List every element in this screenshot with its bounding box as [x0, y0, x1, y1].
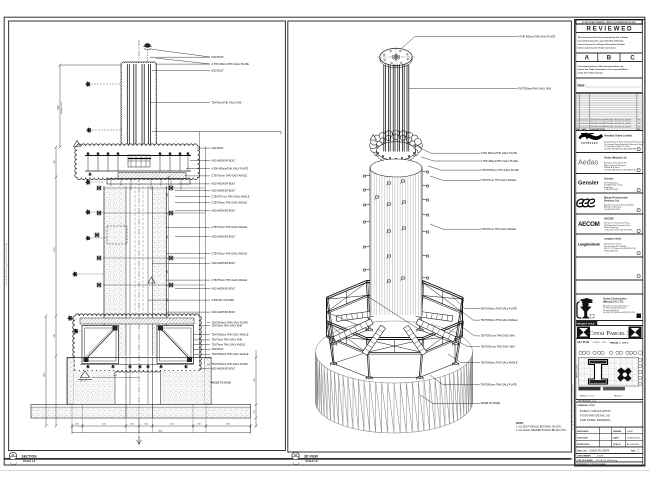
svg-text:Gensler: Gensler [604, 178, 613, 181]
svg-text:JOB NUMBER: JOB NUMBER [577, 456, 591, 458]
svg-text:C75X75T mm THK GALV ANGLE: C75X75T mm THK GALV ANGLE [212, 195, 250, 199]
svg-text:Tel: (853) 2833 1113 Fax: (85: Tel: (853) 2833 1113 Fax: (853) 2833 111… [604, 169, 636, 171]
svg-text:75X75X5mm THK GALV PLATE: 75X75X5mm THK GALV PLATE [212, 362, 249, 366]
svg-text:relieve the Trade Contractor: relieve the Trade Contractor of its resp… [578, 68, 629, 71]
svg-text:C75X75mm THK GALV ANGLE: C75X75mm THK GALV ANGLE [212, 174, 248, 178]
svg-text:75X75X5mm THK GALV ANGLE: 75X75X5mm THK GALV ANGLE [212, 332, 249, 336]
svg-text:75X75mm THK GALV SHS: 75X75mm THK GALV SHS [212, 338, 243, 342]
svg-text:SCALE 1:8: SCALE 1:8 [306, 460, 319, 463]
svg-text:3115/B_PD_85099.dwg 2/14/2015: 3115/B_PD_85099.dwg 2/14/2015 10:22:41 A… [5, 242, 8, 285]
svg-text:under the Trade Contract.: under the Trade Contract. [578, 72, 604, 75]
svg-text:Consultant review of this docu: Consultant review of this document does … [578, 65, 624, 68]
svg-text:SCALE: SCALE [613, 443, 621, 446]
svg-text:C75X75mm THK GALV ANGLE: C75X75mm THK GALV ANGLE [212, 200, 248, 204]
svg-text:(verify on site): (verify on site) [60, 102, 63, 114]
svg-text:M10 ANCHOR BOLT: M10 ANCHOR BOLT [212, 367, 236, 371]
svg-text:75X75X5mm THK GALV ANGLE: 75X75X5mm THK GALV ANGLE [212, 352, 249, 356]
svg-text:M10 ANCHOR BOLT: M10 ANCHOR BOLT [212, 188, 236, 192]
svg-text:△: △ [577, 118, 579, 121]
svg-text:M10 BOLT: M10 BOLT [212, 347, 225, 351]
svg-text:LMHO: LMHO [627, 431, 634, 433]
svg-text:△: △ [577, 122, 579, 125]
svg-text:T +852.2521.3028: T +852.2521.3028 [604, 189, 618, 191]
svg-text:SCALE 1:8: SCALE 1:8 [23, 460, 36, 463]
svg-text:M10 BOLT: M10 BOLT [212, 146, 225, 150]
svg-text:3D VIEW: 3D VIEW [304, 454, 319, 458]
svg-text:PARCEL 1, LOT 3: PARCEL 1, LOT 3 [575, 364, 578, 378]
svg-text:PARCEL 2: PARCEL 2 [614, 395, 623, 398]
svg-text:M10 BOLT: M10 BOLT [212, 55, 225, 59]
svg-text:Tel: (853) 2878 2938: Tel: (853) 2878 2938 [604, 209, 620, 211]
svg-text:2. ALL FILLET WELDED SHOULD B: 2. ALL FILLET WELDED SHOULD BE 6mm THK. [516, 429, 567, 432]
svg-text:NOTE:: NOTE: [516, 422, 524, 425]
svg-text:PARCEL 1, LOT 2: PARCEL 1, LOT 2 [610, 342, 629, 345]
svg-text:DRAWING TITLE: DRAWING TITLE [578, 404, 596, 407]
svg-text:10-10-14: 10-10-14 [580, 119, 589, 121]
svg-text:75X75mm THK GALV ANGLE: 75X75mm THK GALV ANGLE [212, 342, 246, 346]
svg-text:C: C [630, 56, 635, 62]
svg-text:4 THK 450mmTHK GALV PLATE: 4 THK 450mmTHK GALV PLATE [518, 34, 556, 38]
svg-text:Aedas: Aedas [578, 158, 599, 167]
svg-text:300: 300 [167, 193, 169, 196]
svg-text:C: C [638, 448, 640, 452]
svg-text:REV: REV [631, 450, 636, 452]
svg-text:FOR STEEL DRAWING: FOR STEEL DRAWING [580, 418, 611, 422]
svg-text:3115/B_PD_85099: 3115/B_PD_85099 [589, 449, 610, 452]
svg-text:T +852 2317 7273 F +852 231: T +852 2317 7273 F +852 2317 7609 [604, 229, 632, 231]
svg-text:M10 ANCHOR BOLT: M10 ANCHOR BOLT [212, 159, 236, 163]
svg-text:M10 ANCHOR BOLT: M10 ANCHOR BOLT [212, 310, 236, 314]
svg-text:Services Ltd.: Services Ltd. [604, 200, 620, 203]
svg-text:450: 450 [254, 377, 256, 381]
svg-text:M10 ANCHOR BOLT: M10 ANCHOR BOLT [212, 235, 236, 239]
svg-text:F (853) 2833 1532: F (853) 2833 1532 [604, 250, 618, 252]
svg-text:C75X75mm THK GALV ANGLE: C75X75mm THK GALV ANGLE [481, 178, 517, 182]
svg-text:Aedas (Macau) Ltd.: Aedas (Macau) Ltd. [604, 157, 627, 160]
svg-text:CHECKED: CHECKED [577, 437, 588, 439]
svg-text:DRAWN: DRAWN [613, 430, 622, 433]
svg-text:2700: 2700 [54, 247, 56, 253]
svg-text:Tel: (853) 2875 3618 Fax: (85: Tel: (853) 2875 3618 Fax: (853) 2875 371… [603, 312, 635, 314]
svg-text:Gensler: Gensler [578, 181, 600, 187]
svg-text:CAD FILE NAME: CAD FILE NAME [577, 459, 593, 462]
svg-text:A: A [585, 56, 590, 62]
svg-text:5.4 for action by the Trade Co: 5.4 for action by the Trade Contractor. [578, 46, 617, 49]
svg-text:(Macau) CO. LTD.: (Macau) CO. LTD. [603, 301, 624, 304]
svg-text:C75X75X5mm THK GALV PLATE: C75X75X5mm THK GALV PLATE [481, 168, 520, 172]
svg-text:M10 BOLT: M10 BOLT [212, 69, 225, 73]
svg-text:3115/B_PD_85099.dwg: 3115/B_PD_85099.dwg [596, 460, 617, 462]
svg-text:M10 ANCHOR BOLT: M10 ANCHOR BOLT [212, 182, 236, 186]
svg-text:C75X75mm THK GALV ANGLE: C75X75mm THK GALV ANGLE [212, 225, 248, 229]
svg-text:SCALE 1 : 7500: SCALE 1 : 7500 [593, 341, 606, 344]
svg-text:DESIGNED: DESIGNED [577, 431, 589, 433]
svg-text:75X75X5 mm THK GALV SHS: 75X75X5 mm THK GALV SHS [481, 334, 516, 338]
svg-text:PARCEL 1, LOT 1: PARCEL 1, LOT 1 [580, 395, 594, 398]
svg-text:M10 ANCHOR BOLT: M10 ANCHOR BOLT [212, 261, 236, 265]
svg-text:B: B [607, 56, 612, 62]
svg-text:LangdonSeah: LangdonSeah [578, 243, 601, 247]
svg-text:ISSUED FOR APPROVAL 3115/B_PD_: ISSUED FOR APPROVAL 3115/B_PD_85099 [590, 118, 631, 121]
svg-text:1. ALL BOLT SHOULD BE FIXING: 1. ALL BOLT SHOULD BE FIXING ON SITE, [516, 426, 562, 429]
svg-text:status referred to in Projec: status referred to in Project Procedure … [578, 43, 626, 46]
svg-text:PUBLIC CIRCULATION: PUBLIC CIRCULATION [580, 409, 611, 413]
svg-text:4200Ø RC BASE: 4200Ø RC BASE [481, 401, 501, 405]
svg-text:AECOM: AECOM [578, 221, 600, 228]
svg-text:540: 540 [54, 334, 56, 337]
svg-text:45X75X5mm THK GALV PLATE: 45X75X5mm THK GALV PLATE [481, 306, 518, 310]
svg-text:75X75X5mmTHK GALV SHS: 75X75X5mmTHK GALV SHS [518, 86, 551, 90]
svg-text:Date :: Date : [578, 84, 587, 88]
svg-text:AS SHOWN: AS SHOWN [627, 443, 639, 446]
svg-text:4200Ø RC BASE: 4200Ø RC BASE [212, 381, 232, 385]
svg-text:DATE: DATE [613, 436, 619, 439]
svg-text:3115/B_PD_85099.dwg 14-FEB-20: 3115/B_PD_85099.dwg 14-FEB-2015 10:22 LM… [573, 384, 575, 430]
svg-text:C75X75mm THK GALV ANGLE: C75X75mm THK GALV ANGLE [212, 251, 248, 255]
svg-text:KEY PLAN: KEY PLAN [578, 341, 590, 344]
svg-text:M10 ANCHOR BOLT: M10 ANCHOR BOLT [212, 209, 236, 213]
svg-text:SECTION: SECTION [22, 454, 38, 458]
svg-text:PROJECT TITLE: PROJECT TITLE [577, 323, 595, 325]
svg-text:150: 150 [254, 409, 256, 413]
svg-text:REFERENCE CAD FILE NAME: REFERENCE CAD FILE NAME [577, 463, 606, 466]
svg-text:4 THK 450mmTHK GALV PLATE: 4 THK 450mmTHK GALV PLATE [481, 159, 519, 163]
svg-text:Venetian Orient Limited: Venetian Orient Limited [604, 135, 632, 138]
svg-text:1150: 1150 [44, 372, 46, 377]
svg-text:4 THK 450mmTHK GALV PLATE: 4 THK 450mmTHK GALV PLATE [212, 62, 250, 66]
svg-text:APPROVED: APPROVED [577, 443, 590, 446]
svg-text:DWG. NO.: DWG. NO. [577, 450, 588, 452]
svg-text:75X75X5mm THK GALV PLATE: 75X75X5mm THK GALV PLATE [481, 383, 518, 387]
svg-text:C75X75mm THK GALV ANGLE: C75X75mm THK GALV ANGLE [212, 278, 248, 282]
svg-text:DO NOT SCALE DRAWING. VERIFY A: DO NOT SCALE DRAWING. VERIFY ALL DIMENSI… [582, 21, 637, 24]
svg-text:300: 300 [167, 235, 169, 238]
svg-text:4 500 450mmTHK GALV PLATE: 4 500 450mmTHK GALV PLATE [481, 151, 518, 155]
svg-text:ISSUED FOR APPROVAL 3115/B_PD_: ISSUED FOR APPROVAL 3115/B_PD_85099 [590, 122, 631, 125]
svg-text:75X75X5 mm THK GALV SHS: 75X75X5 mm THK GALV SHS [481, 344, 516, 348]
svg-text:This document has been reviewe: This document has been reviewed by the r… [578, 36, 629, 39]
svg-text:Langdon Seah: Langdon Seah [604, 238, 622, 241]
svg-text:Cᴏᴛᴀɪ Pᴀʀᴄᴇʟ 3: Cᴏᴛᴀɪ Pᴀʀᴄᴇʟ 3 [589, 330, 630, 337]
svg-text:Tel: (853) 2882 8888 Fax: (: Tel: (853) 2882 8888 Fax: (853) 2882 888… [604, 148, 636, 150]
svg-text:1798: 1798 [58, 105, 60, 111]
svg-text:75X75mmTHK GALV SHS: 75X75mmTHK GALV SHS [212, 101, 242, 105]
svg-text:AECOM: AECOM [604, 218, 613, 221]
svg-text:R E V I E W E D: R E V I E W E D [586, 26, 632, 33]
svg-text:300: 300 [54, 160, 56, 163]
svg-text:75X75mm THK GALV SHS: 75X75mm THK GALV SHS [212, 324, 243, 328]
svg-text:3115/B: 3115/B [597, 456, 604, 458]
svg-text:VENETIAN: VENETIAN [581, 142, 598, 145]
svg-text:75X75X5mm THK GALV ANGLE: 75X75X5mm THK GALV ANGLE [481, 360, 518, 364]
svg-text:300: 300 [167, 270, 169, 273]
svg-text:14-FEB-2015: 14-FEB-2015 [627, 437, 641, 439]
svg-text:4 500 450mmTHK GALV PLATE: 4 500 450mmTHK GALV PLATE [212, 167, 249, 171]
svg-text:Consultants(s) and is accorded: Consultants(s) and is accorded the follo… [578, 40, 624, 43]
svg-text:4 500 RC COLUMN: 4 500 RC COLUMN [212, 298, 235, 302]
svg-text:10-10-14: 10-10-14 [580, 123, 589, 125]
svg-text:C75X75mm THK GALV ANGLE: C75X75mm THK GALV ANGLE [481, 227, 517, 231]
svg-text:M10 ANCHOR BOLT: M10 ANCHOR BOLT [212, 286, 236, 290]
svg-text:75X75X5mm THK GALV ANGLE: 75X75X5mm THK GALV ANGLE [481, 318, 518, 322]
svg-text:FOUNTAIN DETAIL (II): FOUNTAIN DETAIL (II) [580, 413, 610, 417]
